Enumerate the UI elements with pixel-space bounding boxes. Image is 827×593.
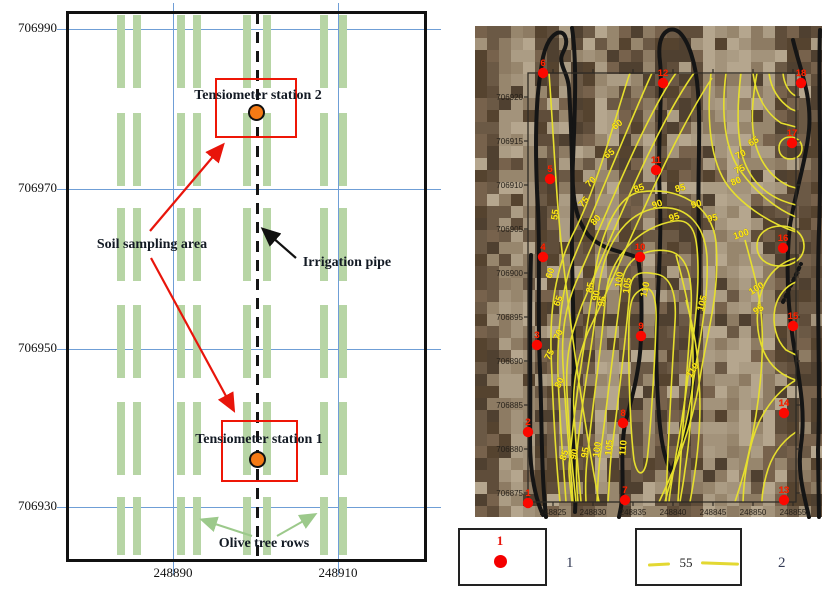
contour-line-minor [783, 73, 796, 96]
olive-tree-row-bar [177, 305, 185, 378]
olive-tree-rows-label: Olive tree rows [219, 536, 309, 552]
contour-label: 90 [590, 289, 603, 301]
olive-tree-row-bar [320, 15, 328, 88]
sample-point-label: 18 [796, 68, 807, 79]
olive-tree-row-bar [320, 113, 328, 186]
contour-label: 75 [733, 162, 748, 177]
sample-point-label: 17 [787, 128, 798, 139]
olive-tree-row-bar [133, 113, 141, 186]
olive-tree-row-bar [117, 113, 125, 186]
station1-label: Tensiometer station 1 [195, 432, 323, 448]
y-axis-label: 706970 [0, 180, 57, 196]
olive-tree-row-bar [193, 113, 201, 186]
contour-line-70 [563, 73, 676, 502]
olive-tree-row-bar [193, 497, 201, 555]
olive-tree-row-bar [263, 305, 271, 378]
sample-point-18 [796, 78, 806, 88]
contour-line-100 [735, 240, 762, 502]
legend-caption-2: 2 [778, 555, 786, 572]
contour-label: 100 [747, 280, 766, 298]
tree-crown-outlines [530, 28, 820, 517]
sample-point-label: 15 [788, 311, 799, 322]
map-y-tick-label: 706910 [496, 181, 523, 190]
contour-label: 65 [602, 146, 618, 161]
contour-line-95 [757, 258, 796, 380]
contour-label: 85 [558, 448, 572, 462]
contour-label: 75 [577, 194, 593, 210]
tree-outline [788, 40, 810, 517]
contour-line-minor [769, 73, 796, 111]
tree-outline [530, 255, 543, 515]
olive-tree-row-bar [177, 402, 185, 475]
contour-line-65 [558, 73, 652, 502]
contour-line-minor [779, 137, 802, 159]
sample-point-2 [523, 427, 533, 437]
olive-tree-row-bar [133, 497, 141, 555]
contour-line-75 [724, 73, 796, 217]
olive-tree-row-bar [177, 497, 185, 555]
contour-label: 95 [706, 212, 719, 225]
contour-label: 80 [553, 376, 567, 390]
olive-tree-row-bar [193, 15, 201, 88]
olive-tree-row-bar [193, 305, 201, 378]
contour-label: 90 [690, 198, 703, 211]
sample-point-label: 16 [778, 233, 789, 244]
y-axis-label: 706930 [0, 498, 57, 514]
contour-label: 100 [613, 271, 626, 288]
legend-contour-line-icon [701, 561, 739, 565]
contour-line-65 [752, 73, 796, 188]
map-x-tick-label: 248850 [740, 508, 767, 517]
contour-line-75 [567, 73, 694, 502]
olive-tree-row-bar [133, 402, 141, 475]
contour-label: 75 [542, 347, 557, 362]
contour-line-minor [743, 380, 796, 502]
contour-labels: 5560657075806065707580859095859095100951… [542, 117, 766, 462]
legend-point-number: 1 [497, 533, 504, 549]
map-x-tick-label: 248845 [700, 508, 727, 517]
sample-point-17 [787, 138, 797, 148]
olive-tree-row-bar [339, 305, 347, 378]
contour-line-70 [738, 73, 796, 205]
map-y-tick-label: 706920 [496, 93, 523, 102]
sample-point-11 [651, 165, 661, 175]
sample-point-label: 6 [540, 58, 545, 69]
olive-tree-row-bar [117, 305, 125, 378]
olive-tree-row-bar [320, 305, 328, 378]
contour-line-110 [686, 300, 700, 502]
legend-contour-value: 55 [680, 555, 693, 571]
contour-label: 95 [579, 446, 592, 459]
sample-point-13 [779, 495, 789, 505]
tree-outline [818, 30, 820, 517]
sample-point-label: 2 [525, 417, 530, 428]
sample-point-14 [779, 408, 789, 418]
sample-point-label: 14 [779, 398, 790, 409]
aerial-photo [475, 26, 822, 517]
map-x-tick-label: 248855 [780, 508, 807, 517]
irrigation-pipe-label: Irrigation pipe [303, 255, 391, 271]
contour-label: 80 [729, 175, 743, 189]
sample-point-10 [635, 252, 645, 262]
contour-line-60 [551, 73, 630, 502]
olive-tree-row-bar [320, 497, 328, 555]
station2-label: Tensiometer station 2 [194, 88, 322, 104]
olive-tree-row-bar [117, 497, 125, 555]
contour-label: 85 [584, 281, 597, 294]
sample-point-15 [788, 321, 798, 331]
map-y-tick-label: 706900 [496, 269, 523, 278]
contour-label: 100 [591, 441, 604, 458]
sample-point-label: 11 [651, 155, 662, 166]
contour-label: 85 [674, 182, 688, 196]
contour-label: 110 [617, 440, 629, 456]
map-x-tick-label: 248825 [540, 508, 567, 517]
contour-label: 90 [650, 198, 663, 212]
map-y-tick-label: 706905 [496, 225, 523, 234]
olive-tree-row-bar [339, 15, 347, 88]
contour-label: 60 [610, 117, 625, 132]
sample-point-9 [636, 331, 646, 341]
olive-tree-row-bar [263, 208, 271, 281]
tensiometer-station2-marker [248, 104, 265, 121]
map-y-tick-label: 706875 [496, 489, 523, 498]
contour-line-95 [774, 282, 796, 355]
map-x-tick-label: 248830 [580, 508, 607, 517]
sample-point-12 [658, 78, 668, 88]
map-frame: 7069207069157069107069057069007068957068… [496, 69, 807, 517]
sample-point-label: 4 [540, 242, 546, 253]
contour-line-90 [576, 208, 707, 502]
contour-label: 95 [668, 211, 682, 225]
contour-label: 105 [603, 439, 615, 456]
contour-line-85 [569, 191, 717, 502]
sample-point-label: 8 [620, 408, 625, 419]
contour-label: 65 [552, 293, 566, 308]
legend-box-point: 1 [458, 528, 547, 586]
olive-tree-row-bar [339, 402, 347, 475]
sample-point-label: 7 [622, 485, 627, 496]
x-axis-label: 248910 [319, 565, 358, 581]
contour-label: 85 [632, 181, 646, 195]
sample-point-1 [523, 498, 533, 508]
legend-contour-line-icon [648, 562, 670, 566]
map-y-tick-label: 706895 [496, 313, 523, 322]
x-axis-label: 248890 [154, 565, 193, 581]
soil-sampling-area-label: Soil sampling area [97, 237, 207, 253]
sampling-points: 123456789101112131415161718 [523, 58, 806, 508]
olive-tree-row-bar [177, 15, 185, 88]
contour-line-105 [608, 273, 675, 502]
contour-label: 70 [552, 328, 566, 342]
contour-line-110 [629, 288, 656, 473]
sample-point-label: 10 [635, 242, 646, 253]
map-y-tick-label: 706880 [496, 445, 523, 454]
sample-point-label: 13 [779, 485, 790, 496]
contour-label: 95 [596, 294, 609, 307]
map-x-tick-label: 248840 [660, 508, 687, 517]
contour-label: 70 [734, 147, 749, 162]
tree-outline [572, 28, 642, 517]
y-axis-label: 706950 [0, 340, 57, 356]
olive-tree-row-bar [243, 305, 251, 378]
contour-label: 95 [751, 302, 766, 317]
contour-label: 65 [746, 134, 761, 149]
contour-label: 110 [639, 281, 653, 298]
contour-line-100 [597, 250, 691, 502]
tree-outline [783, 264, 801, 302]
map-y-tick-label: 706885 [496, 401, 523, 410]
olive-tree-row-bar [117, 15, 125, 88]
map-x-tick-label: 248835 [620, 508, 647, 517]
sample-point-3 [532, 340, 542, 350]
sample-point-16 [778, 243, 788, 253]
contour-line-minor [757, 226, 804, 266]
sample-point-label: 5 [547, 164, 553, 175]
olive-tree-row-bar [243, 208, 251, 281]
y-axis-label: 706990 [0, 20, 57, 36]
sample-point-5 [545, 174, 555, 184]
contour-label: 90 [568, 448, 581, 461]
contour-line-55 [549, 73, 599, 502]
contour-line-80 [709, 73, 796, 232]
olive-tree-row-bar [339, 497, 347, 555]
contour-label: 55 [549, 208, 561, 221]
sample-point-label: 9 [638, 321, 643, 332]
olive-tree-row-bar [133, 15, 141, 88]
tensiometer-station1-marker [249, 451, 266, 468]
contour-line-105 [676, 255, 693, 502]
contour-label: 60 [544, 266, 558, 279]
contour-label: 105 [621, 276, 634, 294]
legend-point-dot-icon [494, 555, 507, 568]
sample-point-label: 3 [534, 330, 539, 341]
olive-tree-row-bar [133, 305, 141, 378]
tree-outline [656, 29, 699, 471]
map-y-tick-label: 706890 [496, 357, 523, 366]
figure: Tensiometer station 2 Tensiometer statio… [0, 0, 827, 593]
sample-point-label: 12 [658, 68, 669, 79]
sample-point-8 [618, 418, 628, 428]
sample-point-6 [538, 68, 548, 78]
olive-tree-row-bar [177, 113, 185, 186]
contour-line-80 [574, 78, 712, 502]
sample-point-7 [620, 495, 630, 505]
map-y-tick-label: 706915 [496, 137, 523, 146]
contour-line-95 [586, 221, 698, 502]
sample-point-4 [538, 252, 548, 262]
contour-line-minor [753, 73, 796, 127]
sample-point-label: 1 [525, 488, 531, 499]
contour-line-minor [762, 432, 796, 502]
contour-lines [549, 73, 804, 502]
contour-label: 110 [684, 361, 702, 380]
olive-tree-row-bar [339, 113, 347, 186]
legend-box-contour: 55 [635, 528, 742, 586]
contour-label: 80 [588, 213, 603, 228]
legend-caption-1: 1 [566, 555, 574, 572]
tree-outline [536, 32, 575, 517]
contour-label: 100 [732, 227, 750, 242]
contour-label: 105 [695, 294, 710, 313]
contour-label: 70 [584, 175, 599, 190]
olive-tree-row-bar [117, 402, 125, 475]
